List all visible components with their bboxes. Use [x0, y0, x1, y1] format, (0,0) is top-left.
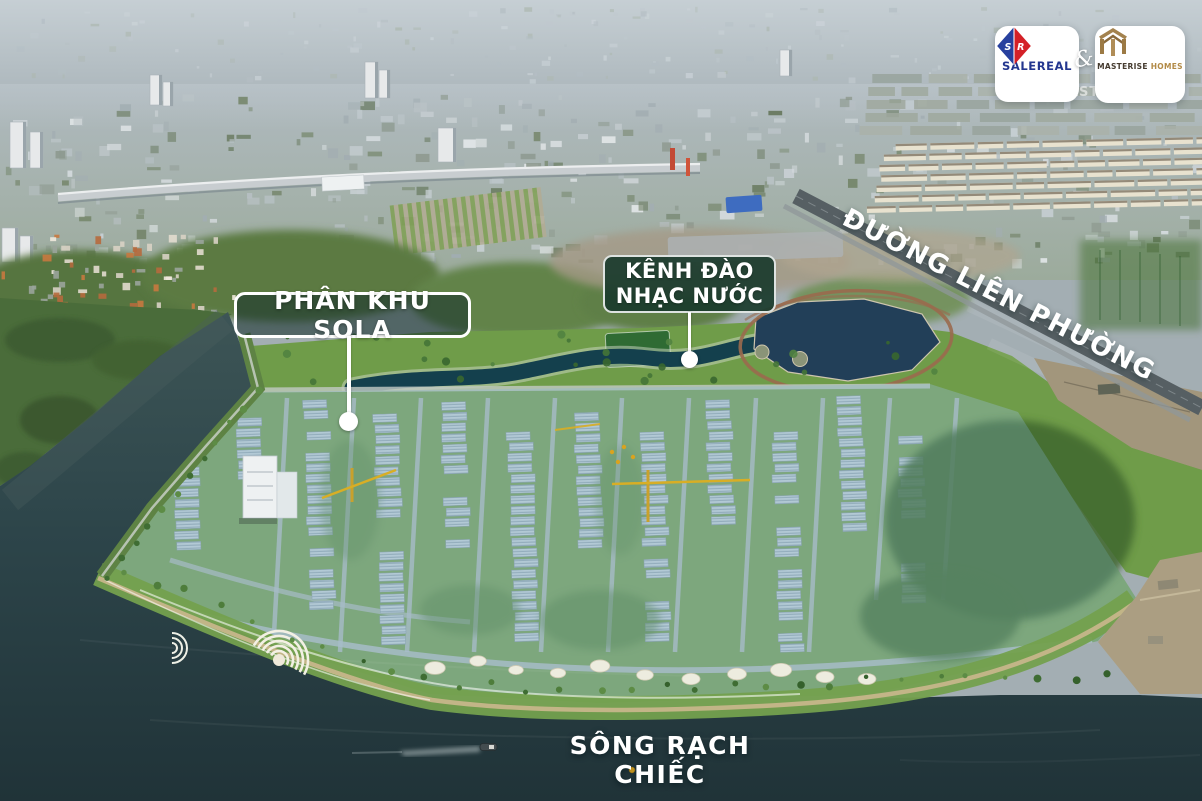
svg-text:S: S: [1005, 42, 1012, 53]
river-label: SÔNG RẠCH CHIẾC: [524, 731, 796, 789]
canal-marker-dot: [681, 351, 698, 368]
subdivision-label: PHÂN KHU SOLA: [234, 292, 471, 338]
masterise-name: MASTERISE HOMES: [1097, 62, 1183, 71]
canal-label-line2: NHẠC NƯỚC: [616, 284, 764, 309]
subdivision-leader-line: [347, 336, 351, 415]
ampersand-connector: &: [1070, 45, 1097, 73]
aerial-photo: PHÂN KHU SOLA KÊNH ĐÀO NHẠC NƯỚC ĐƯỜNG L…: [0, 0, 1202, 801]
canal-label-line1: KÊNH ĐÀO: [625, 259, 754, 284]
canal-label: KÊNH ĐÀO NHẠC NƯỚC: [603, 255, 776, 313]
canal-leader-line: [688, 312, 691, 353]
salereal-logo-icon: S R: [995, 26, 1033, 66]
svg-text:R: R: [1017, 42, 1024, 53]
salereal-logo-card: S R SALEREAL: [995, 26, 1079, 102]
masterise-logo-icon: [1095, 26, 1131, 58]
subdivision-marker-dot: [339, 412, 358, 431]
aerial-scene-svg: [0, 0, 1202, 801]
masterise-logo-card: MASTERISE HOMES: [1095, 26, 1185, 103]
